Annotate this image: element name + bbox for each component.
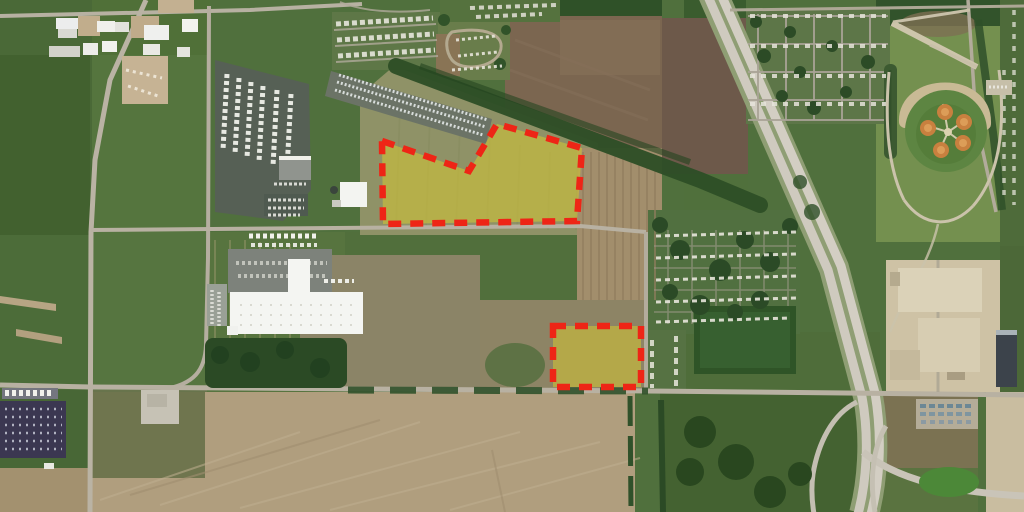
tree-blob [690,295,710,315]
silo-annex [332,200,341,207]
baseball-infield [924,124,932,132]
tree-blob [804,204,820,220]
tree-blob [754,476,786,508]
warehouse-crossdock [288,259,310,293]
clearing-patch [918,318,980,372]
retention-pond [919,467,979,497]
industrial-building [97,21,115,32]
houses-strip [648,330,686,392]
industrial-building [143,44,160,55]
warehouse-dock [228,249,332,293]
trees-strip [560,0,662,16]
baseball-infield [941,108,949,116]
hedgerow-vertical [661,400,663,512]
industrial-building [177,47,190,57]
tree-blob [784,26,796,38]
gravel-yard [158,0,194,13]
dark-building-roofline [996,330,1017,335]
warehouse-west-parking [207,284,227,326]
tree-blob [438,14,450,26]
dark-industrial-building [996,332,1017,387]
tree-blob [240,352,260,372]
clearing-patch [890,350,920,380]
baseball-infield [959,139,967,147]
tree-blob [676,458,704,486]
clearing-patch [898,268,982,312]
tree-blob [727,304,743,320]
satellite-map[interactable] [0,0,1024,512]
field [440,0,560,22]
tree-blob [211,346,229,364]
gravel-yard [122,56,168,104]
industrial-building [83,43,98,55]
concrete-pad-inner [147,394,167,407]
warehouse-main [230,292,363,334]
industrial-bit [890,272,900,286]
tree-blob [840,86,852,98]
industrial-bit [947,372,965,380]
field [0,55,90,235]
tree-blob [718,444,754,480]
hedgerow-vertical [630,396,631,512]
silo-building [340,182,367,207]
industrial-building [56,18,78,29]
gravel-yard [78,16,100,36]
tree-blob [684,416,716,448]
field-blotch [485,343,545,387]
tree-blob [757,49,771,63]
field [0,468,88,512]
tree-blob [310,358,330,378]
industrial-building [58,29,77,38]
industrial-building [115,22,129,32]
tree-blob [662,284,678,300]
baseball-infield [960,118,968,126]
terminal-building-roof [279,156,311,160]
satellite-map-view[interactable] [0,0,1024,512]
industrial-building [102,41,117,52]
warehouse-tab [227,326,238,335]
terminal-building [279,158,311,180]
terminal-south-lot [264,194,308,216]
industrial-building [49,46,80,57]
tree-blob [776,90,788,102]
ballpark-hub [944,128,952,136]
storage-tank [330,186,338,194]
tree-blob [501,25,511,35]
tree-blob [652,217,668,233]
small-building [44,463,54,469]
baseball-infield [937,146,945,154]
tree-blob [788,462,812,486]
industrial-building [144,25,169,40]
highlighted-parcel-south[interactable] [553,326,641,387]
industrial-building [182,19,198,32]
tree-blob [861,55,875,69]
field [92,232,207,390]
tree-blob [793,175,807,189]
tree-blob [276,341,294,359]
field-brown [560,20,660,75]
